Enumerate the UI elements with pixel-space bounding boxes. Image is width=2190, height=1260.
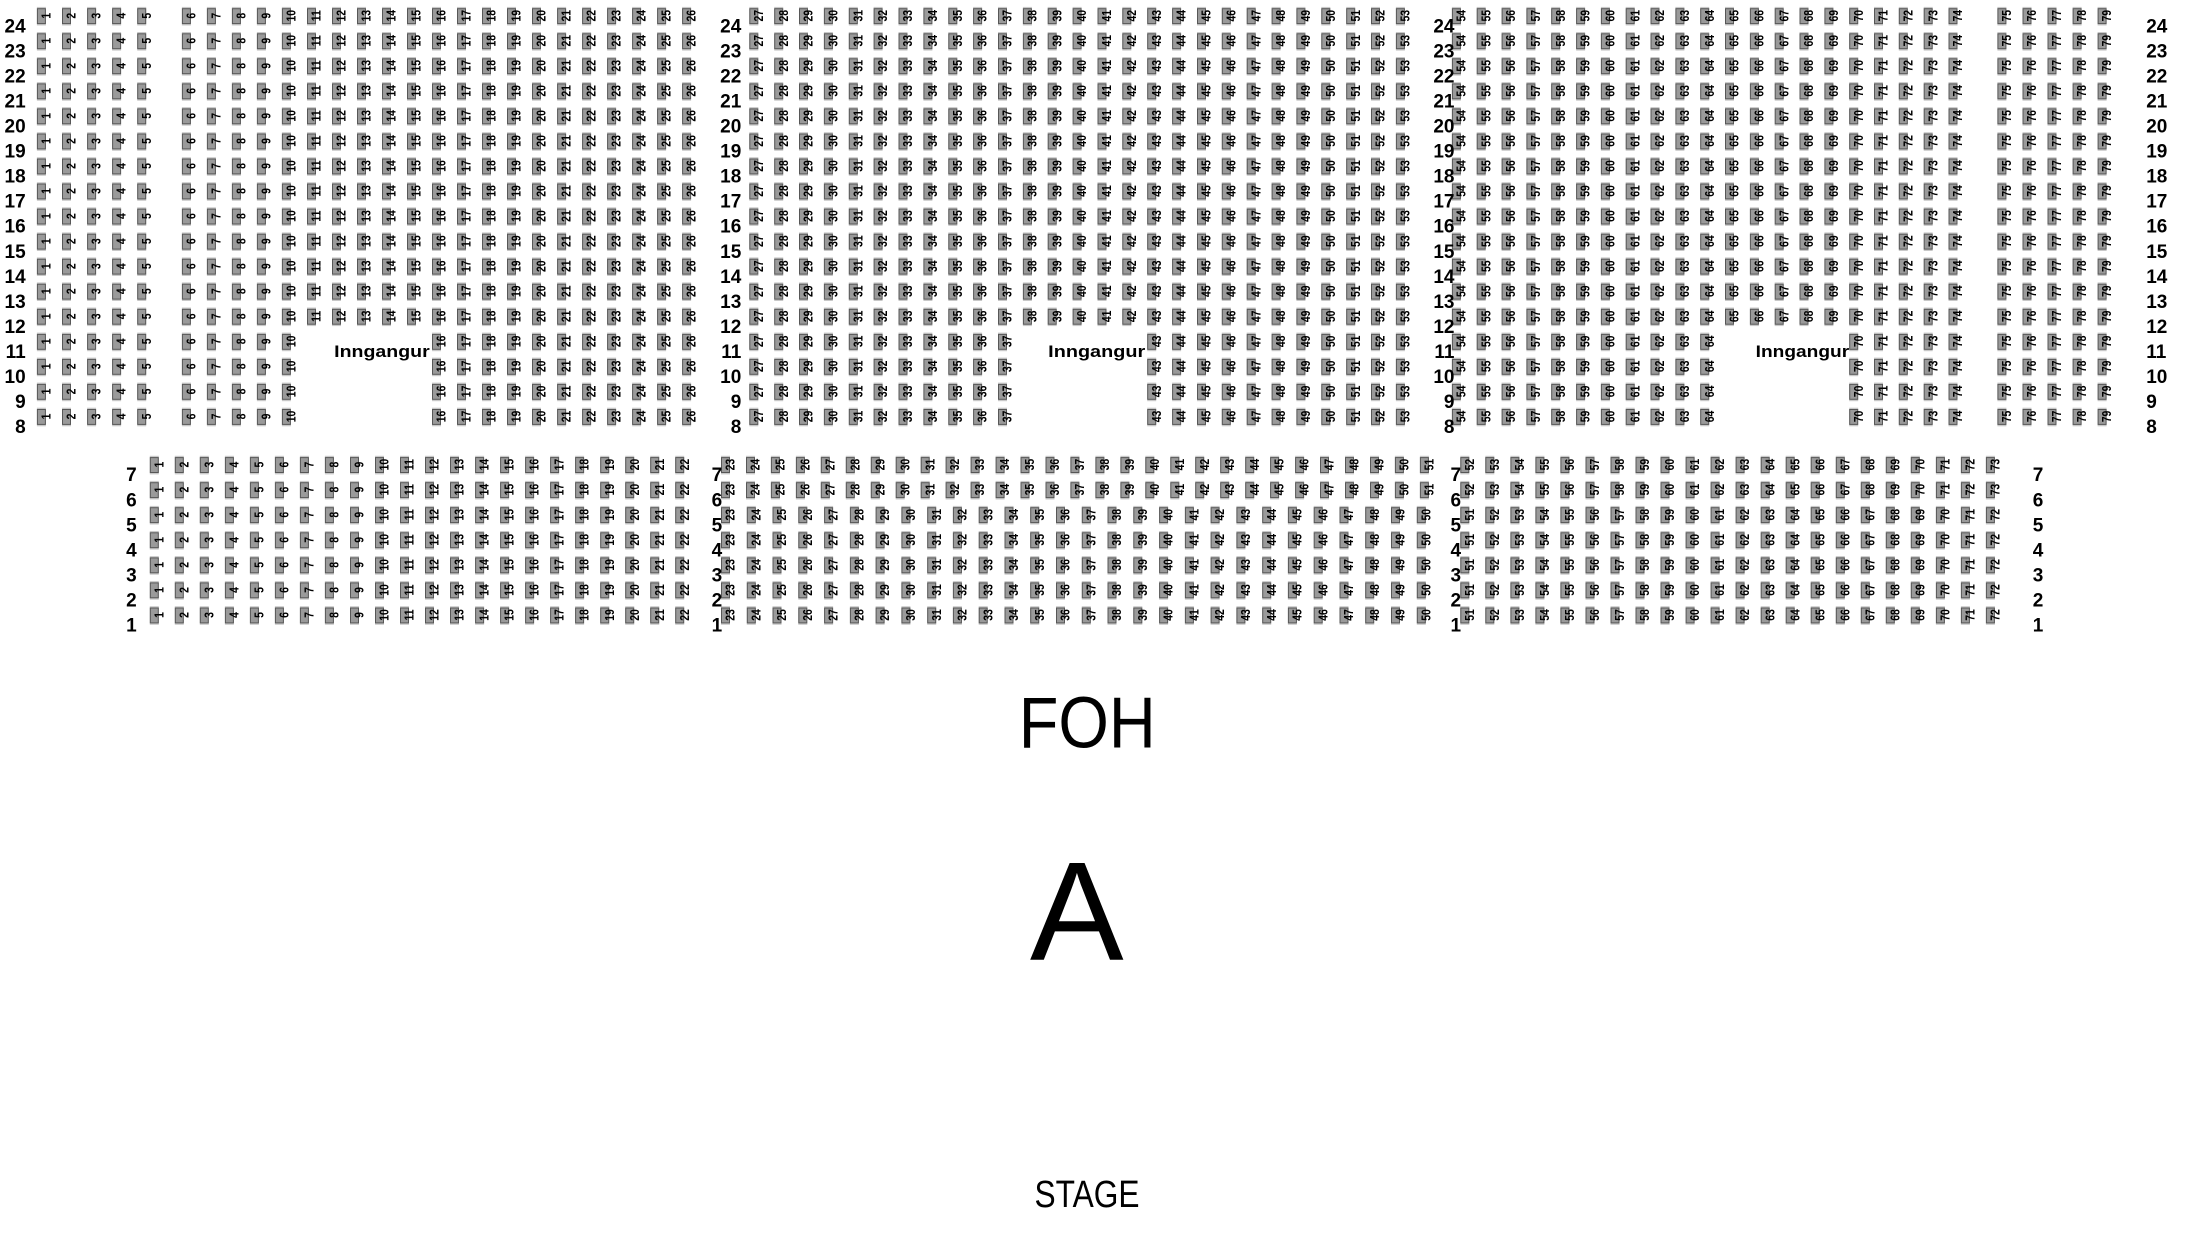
svg-text:4: 4 xyxy=(1451,540,1462,561)
svg-text:12: 12 xyxy=(720,317,741,338)
svg-text:21: 21 xyxy=(5,92,27,113)
svg-text:18: 18 xyxy=(1433,167,1454,188)
svg-text:3: 3 xyxy=(1451,566,1462,587)
svg-text:16: 16 xyxy=(5,217,26,238)
svg-text:123456789101112131415161718192: 1234567891011121314151617181920212223242… xyxy=(151,484,2003,496)
svg-text:2: 2 xyxy=(712,591,723,612)
svg-text:123456789101112131415161718192: 1234567891011121314151617181920212223242… xyxy=(151,609,2003,621)
svg-text:15: 15 xyxy=(5,242,27,263)
svg-text:123456789101112131415161718192: 1234567891011121314151617181920212223242… xyxy=(38,60,2114,72)
svg-text:10: 10 xyxy=(1433,367,1454,388)
svg-text:123456789101112131415161718192: 1234567891011121314151617181920212223242… xyxy=(38,10,2114,22)
svg-text:24: 24 xyxy=(720,16,742,37)
svg-text:10: 10 xyxy=(2146,367,2167,388)
svg-text:3: 3 xyxy=(712,566,723,587)
svg-text:17: 17 xyxy=(720,192,741,213)
svg-text:21: 21 xyxy=(1433,92,1455,113)
svg-text:11: 11 xyxy=(2146,342,2167,363)
svg-text:12: 12 xyxy=(2146,317,2167,338)
svg-text:123456789101112131415161718192: 1234567891011121314151617181920212223242… xyxy=(151,534,2003,546)
svg-text:16: 16 xyxy=(720,217,741,238)
svg-text:5: 5 xyxy=(126,515,137,536)
svg-text:19: 19 xyxy=(1433,142,1454,163)
svg-text:21: 21 xyxy=(720,92,742,113)
svg-text:24: 24 xyxy=(5,16,27,37)
svg-text:1: 1 xyxy=(2033,616,2044,637)
svg-text:Inngangur: Inngangur xyxy=(1048,342,1145,361)
svg-text:22: 22 xyxy=(5,66,26,87)
svg-text:13: 13 xyxy=(1433,292,1454,313)
svg-text:8: 8 xyxy=(2146,417,2157,438)
svg-text:123456789101112131415161718192: 1234567891011121314151617181920212223242… xyxy=(151,458,2003,470)
svg-text:18: 18 xyxy=(2146,167,2167,188)
svg-text:123456789101617181920212223242: 1234567891016171819202122232425262728293… xyxy=(38,385,2114,397)
svg-text:123456789101112131415161718192: 1234567891011121314151617181920212223242… xyxy=(38,110,2114,122)
svg-text:9: 9 xyxy=(731,392,742,413)
svg-text:6: 6 xyxy=(1451,490,1462,511)
svg-text:15: 15 xyxy=(720,242,742,263)
svg-text:21: 21 xyxy=(2146,92,2168,113)
svg-text:6: 6 xyxy=(712,490,723,511)
svg-text:123456789101112131415161718192: 1234567891011121314151617181920212223242… xyxy=(38,35,2114,47)
svg-text:123456789101617181920212223242: 1234567891016171819202122232425262728293… xyxy=(38,360,2114,372)
svg-text:22: 22 xyxy=(1433,66,1454,87)
svg-text:19: 19 xyxy=(5,142,26,163)
svg-text:2: 2 xyxy=(126,591,137,612)
svg-text:123456789101112131415161718192: 1234567891011121314151617181920212223242… xyxy=(151,584,2003,596)
svg-text:23: 23 xyxy=(5,41,26,62)
svg-text:15: 15 xyxy=(1433,242,1455,263)
svg-text:4: 4 xyxy=(2033,540,2044,561)
svg-text:2: 2 xyxy=(2033,591,2044,612)
svg-text:2: 2 xyxy=(1451,591,1462,612)
svg-text:7: 7 xyxy=(126,465,137,486)
svg-text:123456789101112131415161718192: 1234567891011121314151617181920212223242… xyxy=(151,509,2003,521)
svg-text:16: 16 xyxy=(2146,217,2167,238)
svg-text:123456789101617181920212223242: 1234567891016171819202122232425262728293… xyxy=(38,410,2114,422)
svg-text:20: 20 xyxy=(2146,117,2167,138)
svg-text:14: 14 xyxy=(2146,267,2168,288)
svg-text:24: 24 xyxy=(2146,16,2168,37)
svg-text:22: 22 xyxy=(720,66,741,87)
svg-text:FOH: FOH xyxy=(1019,684,1156,764)
svg-text:6: 6 xyxy=(126,490,137,511)
svg-text:16: 16 xyxy=(1433,217,1454,238)
svg-text:12: 12 xyxy=(1433,317,1454,338)
svg-text:9: 9 xyxy=(15,392,26,413)
svg-text:123456789101112131415161718192: 1234567891011121314151617181920212223242… xyxy=(38,210,2114,222)
svg-text:17: 17 xyxy=(2146,192,2167,213)
svg-text:7: 7 xyxy=(712,465,723,486)
svg-text:123456789101112131415161718192: 1234567891011121314151617181920212223242… xyxy=(38,260,2114,272)
svg-text:11: 11 xyxy=(721,342,742,363)
svg-text:20: 20 xyxy=(5,117,26,138)
svg-text:23: 23 xyxy=(720,41,741,62)
svg-text:23: 23 xyxy=(1433,41,1454,62)
svg-text:19: 19 xyxy=(720,142,741,163)
svg-text:123456789101112131415161718192: 1234567891011121314151617181920212223242… xyxy=(38,185,2114,197)
svg-text:8: 8 xyxy=(731,417,742,438)
svg-text:14: 14 xyxy=(5,267,27,288)
svg-text:5: 5 xyxy=(1451,515,1462,536)
svg-text:123456789101112131415161718192: 1234567891011121314151617181920212223242… xyxy=(38,285,2114,297)
svg-text:8: 8 xyxy=(15,417,26,438)
svg-text:13: 13 xyxy=(5,292,26,313)
svg-text:4: 4 xyxy=(712,540,723,561)
svg-text:10: 10 xyxy=(5,367,26,388)
svg-text:20: 20 xyxy=(720,117,741,138)
svg-text:7: 7 xyxy=(2033,465,2044,486)
svg-text:17: 17 xyxy=(1433,192,1454,213)
svg-text:8: 8 xyxy=(1444,417,1455,438)
svg-text:Inngangur: Inngangur xyxy=(1756,342,1850,361)
svg-text:A: A xyxy=(1030,833,1124,990)
svg-text:5: 5 xyxy=(2033,515,2044,536)
svg-text:123456789101112131415161718192: 1234567891011121314151617181920212223242… xyxy=(38,310,2114,322)
svg-text:7: 7 xyxy=(1451,465,1462,486)
svg-text:123456789101112131415161718192: 1234567891011121314151617181920212223242… xyxy=(38,135,2114,147)
svg-text:24: 24 xyxy=(1433,16,1455,37)
svg-text:1: 1 xyxy=(1451,616,1462,637)
svg-text:11: 11 xyxy=(1434,342,1455,363)
svg-text:12: 12 xyxy=(5,317,26,338)
svg-text:10: 10 xyxy=(720,367,741,388)
svg-text:STAGE: STAGE xyxy=(1035,1174,1140,1216)
svg-text:22: 22 xyxy=(2146,66,2167,87)
svg-text:20: 20 xyxy=(1433,117,1454,138)
svg-text:Inngangur: Inngangur xyxy=(334,342,430,361)
svg-text:1: 1 xyxy=(126,616,137,637)
svg-text:3: 3 xyxy=(126,566,137,587)
svg-text:6: 6 xyxy=(2033,490,2044,511)
svg-text:13: 13 xyxy=(2146,292,2167,313)
svg-text:123456789101112131415161718192: 1234567891011121314151617181920212223242… xyxy=(38,85,2114,97)
svg-text:11: 11 xyxy=(6,342,27,363)
svg-text:5: 5 xyxy=(712,515,723,536)
svg-text:14: 14 xyxy=(720,267,742,288)
svg-text:14: 14 xyxy=(1433,267,1455,288)
svg-text:123456789101112131415161718192: 1234567891011121314151617181920212223242… xyxy=(151,559,2003,571)
svg-text:9: 9 xyxy=(2146,392,2157,413)
svg-text:19: 19 xyxy=(2146,142,2167,163)
svg-text:123456789101112131415161718192: 1234567891011121314151617181920212223242… xyxy=(38,235,2114,247)
svg-text:15: 15 xyxy=(2146,242,2168,263)
svg-text:3: 3 xyxy=(2033,566,2044,587)
svg-text:18: 18 xyxy=(5,167,26,188)
svg-text:13: 13 xyxy=(720,292,741,313)
svg-text:1: 1 xyxy=(712,616,723,637)
svg-text:9: 9 xyxy=(1444,392,1455,413)
svg-text:23: 23 xyxy=(2146,41,2167,62)
svg-text:4: 4 xyxy=(126,540,137,561)
svg-text:123456789101112131415161718192: 1234567891011121314151617181920212223242… xyxy=(38,160,2114,172)
svg-text:18: 18 xyxy=(720,167,741,188)
svg-text:17: 17 xyxy=(5,192,26,213)
